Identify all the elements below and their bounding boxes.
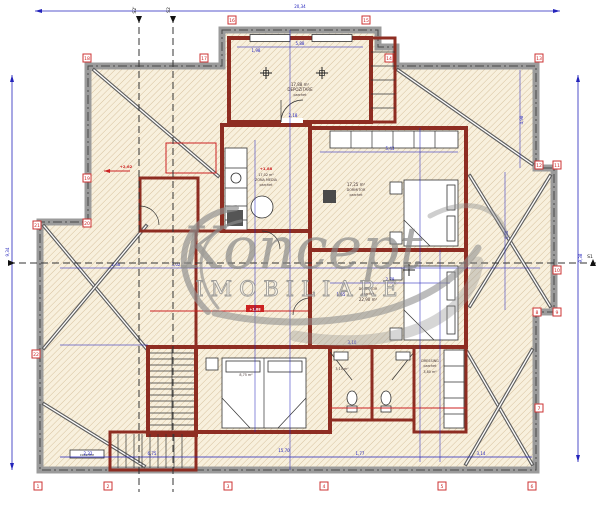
room-area: 17,25 m² — [347, 182, 366, 187]
level-mark: +1,88 — [260, 166, 273, 171]
svg-text:6: 6 — [531, 484, 534, 490]
room-finish: parchet — [350, 193, 364, 197]
toilet — [347, 391, 357, 405]
svg-text:10: 10 — [554, 268, 560, 274]
dim: 2,18 — [289, 113, 298, 118]
window — [250, 35, 290, 42]
svg-text:4: 4 — [323, 484, 326, 490]
dim: 3,14 — [477, 451, 486, 456]
watermark-subtitle: IMOBILIARE — [195, 277, 404, 301]
svg-text:3: 3 — [227, 484, 230, 490]
svg-text:11: 11 — [554, 163, 560, 169]
svg-text:17: 17 — [201, 56, 207, 62]
room-area: 17,02 m² — [258, 173, 274, 177]
level-mark: +2,62 — [120, 164, 133, 169]
nightstand — [390, 182, 402, 194]
room-finish: parchet — [424, 364, 438, 368]
dim: 6,75 — [148, 451, 157, 456]
dim: 20,34 — [294, 4, 306, 9]
dim: 4,98 — [519, 115, 524, 124]
sink — [334, 352, 348, 360]
dim: 9,38 — [578, 253, 583, 262]
svg-text:20: 20 — [84, 221, 90, 227]
section-label-s2p: S2' — [132, 6, 138, 13]
room-name: DORMITOR — [347, 188, 366, 192]
dim: 5,88 — [296, 41, 305, 46]
svg-text:14: 14 — [386, 56, 392, 62]
svg-text:7: 7 — [538, 406, 541, 412]
svg-text:15: 15 — [363, 18, 369, 24]
room-area: 3,10 m² — [335, 367, 349, 371]
floor-plan-page: 17,88 m² DEPOZITARE parchet +1,88 17,02 … — [0, 0, 605, 508]
room-area: 8,75 m² — [239, 373, 253, 377]
svg-text:19: 19 — [84, 176, 90, 182]
dim: 5,43 — [386, 146, 395, 151]
svg-text:22: 22 — [33, 352, 39, 358]
pillow — [268, 361, 302, 372]
room-name: ZONA MEDIA — [255, 178, 278, 182]
svg-text:2: 2 — [107, 484, 110, 490]
room-finish: parchet — [294, 93, 308, 97]
dim: 1,98 — [252, 48, 261, 53]
room-finish: parchet — [260, 183, 274, 187]
floor-plan-drawing: 17,88 m² DEPOZITARE parchet +1,88 17,02 … — [0, 0, 605, 508]
post — [323, 190, 336, 203]
toilet — [381, 391, 391, 405]
svg-text:5: 5 — [441, 484, 444, 490]
dim: 9,34 — [5, 247, 10, 256]
room-name: DRESSING — [421, 359, 439, 363]
svg-text:13: 13 — [536, 56, 542, 62]
dim: 2,32 — [84, 451, 93, 456]
svg-text:12: 12 — [536, 163, 542, 169]
svg-text:18: 18 — [84, 56, 90, 62]
shelves — [444, 350, 464, 428]
section-label-s1: S1 — [587, 254, 593, 260]
room-area: 3,80 m² — [423, 370, 437, 374]
sink — [231, 173, 241, 183]
nightstand — [206, 358, 218, 370]
room-name: DEPOZITARE — [287, 87, 313, 92]
svg-text:1: 1 — [37, 484, 40, 490]
svg-text:21: 21 — [34, 223, 40, 229]
svg-text:8: 8 — [536, 310, 539, 316]
window — [312, 35, 352, 42]
svg-text:9: 9 — [556, 310, 559, 316]
sink — [396, 352, 410, 360]
watermark-brand: Koncept — [180, 214, 423, 282]
dim: 15,70 — [278, 448, 290, 453]
dim: 1,77 — [356, 451, 365, 456]
svg-text:16: 16 — [229, 18, 235, 24]
pillow — [447, 216, 455, 241]
section-label-s2: S2 — [166, 7, 172, 13]
